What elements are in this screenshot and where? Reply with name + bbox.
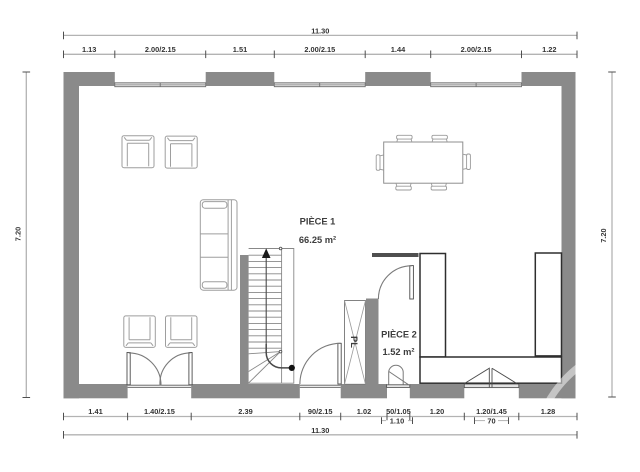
svg-text:1.44: 1.44 [391,45,406,54]
svg-text:1.51: 1.51 [233,45,247,54]
svg-text:PIÈCE 1: PIÈCE 1 [300,217,336,227]
svg-text:1.10: 1.10 [390,416,404,425]
svg-text:11.30: 11.30 [311,426,329,435]
svg-text:90/2.15: 90/2.15 [308,407,333,416]
svg-text:2.00/2.15: 2.00/2.15 [145,45,176,54]
svg-text:PL: PL [349,336,359,348]
svg-text:1.28: 1.28 [541,407,555,416]
svg-text:PIÈCE 2: PIÈCE 2 [381,330,417,340]
svg-text:11.30: 11.30 [311,26,329,35]
svg-text:1.13: 1.13 [82,45,96,54]
svg-text:1.40/2.15: 1.40/2.15 [144,407,175,416]
svg-text:7.20: 7.20 [599,228,608,242]
svg-text:7.20: 7.20 [13,227,22,241]
svg-text:66.25 m²: 66.25 m² [299,235,336,245]
svg-text:1.41: 1.41 [88,407,102,416]
svg-text:1.22: 1.22 [542,45,556,54]
svg-text:2.00/2.15: 2.00/2.15 [461,45,492,54]
svg-text:50/1.05: 50/1.05 [386,407,411,416]
svg-text:1.02: 1.02 [357,407,371,416]
svg-text:2.00/2.15: 2.00/2.15 [304,45,335,54]
svg-text:1.52 m²: 1.52 m² [382,347,414,357]
svg-text:70: 70 [487,416,495,425]
svg-text:1.20: 1.20 [430,407,444,416]
svg-text:1.20/1.45: 1.20/1.45 [476,407,507,416]
svg-text:2.39: 2.39 [238,407,252,416]
